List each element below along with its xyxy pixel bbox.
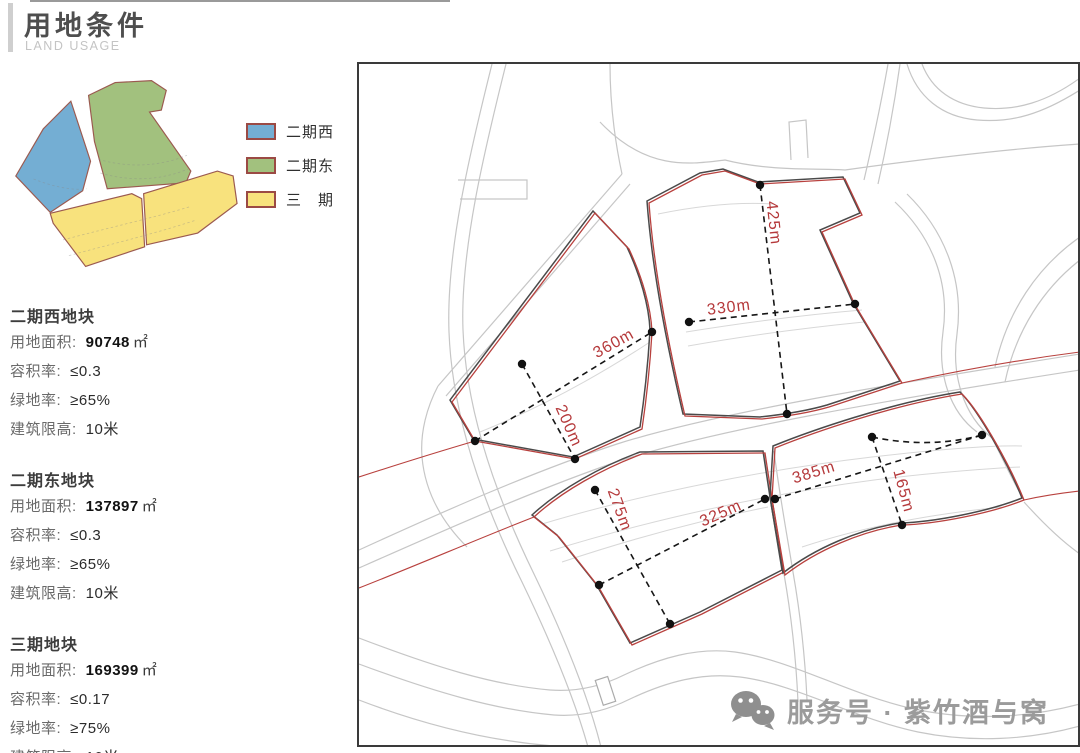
stat-value: ≤0.3	[70, 527, 101, 544]
stat-value: 90748	[86, 334, 130, 351]
stat-row-far: 容积率:≤0.3	[10, 524, 355, 553]
legend-label: 二期东	[286, 155, 334, 176]
stat-row-area: 用地面积:137897㎡	[10, 495, 355, 524]
stat-label: 用地面积:	[10, 498, 77, 515]
stat-row-area: 用地面积:169399㎡	[10, 659, 355, 688]
stat-unit: ㎡	[133, 334, 149, 351]
wechat-icon	[727, 686, 779, 734]
dim-label-165m: 165m	[889, 467, 917, 514]
key-map-thumbnail	[4, 62, 240, 288]
stat-label: 绿地率:	[10, 392, 61, 409]
map-legend: 二期西 二期东 三 期	[246, 121, 334, 223]
page-subtitle: LAND USAGE	[25, 39, 121, 53]
dim-label-325m: 325m	[697, 497, 744, 530]
legend-swatch-phase3	[246, 191, 276, 208]
stat-unit: ㎡	[142, 662, 158, 679]
stat-row-height: 建筑限高:10米	[10, 418, 355, 447]
legend-label: 三 期	[286, 189, 334, 210]
stat-unit: ㎡	[142, 498, 158, 515]
stat-value: ≤0.3	[70, 363, 101, 380]
dim-label-200m: 200m	[552, 402, 585, 449]
page-title: 用地条件	[24, 4, 148, 43]
parcel-phase3-west-boundary	[532, 451, 784, 645]
section-phase2-west: 二期西地块 用地面积:90748㎡ 容积率:≤0.3 绿地率:≥65% 建筑限高…	[10, 303, 355, 447]
legend-swatch-phase2-east	[246, 157, 276, 174]
top-rule	[30, 0, 450, 2]
stat-value: 10米	[86, 421, 119, 438]
stat-label: 用地面积:	[10, 662, 77, 679]
section-phase3: 三期地块 用地面积:169399㎡ 容积率:≤0.17 绿地率:≥75% 建筑限…	[10, 631, 355, 753]
stat-row-height: 建筑限高:10米	[10, 582, 355, 611]
legend-item-phase3: 三 期	[246, 189, 334, 210]
dimension-labels: 425m 330m 360m 200m 275m 325m 385m 165m	[552, 200, 918, 533]
section-title: 二期东地块	[10, 467, 355, 495]
stat-value: ≤0.17	[70, 691, 110, 708]
land-usage-slide: 用地条件 LAND USAGE 二期西 二期东 三 期 二期西地块 用地面积:9	[0, 0, 1080, 753]
stat-label: 建筑限高:	[10, 585, 77, 602]
legend-item-phase2-west: 二期西	[246, 121, 334, 142]
stat-value: 10米	[86, 585, 119, 602]
stat-label: 建筑限高:	[10, 749, 77, 753]
thumb-parcel-phase3-west	[50, 194, 144, 267]
dim-label-385m: 385m	[790, 458, 837, 487]
dim-label-275m: 275m	[604, 486, 635, 533]
stat-row-area: 用地面积:90748㎡	[10, 331, 355, 360]
stat-value: 137897	[86, 498, 139, 515]
dim-label-360m: 360m	[590, 326, 637, 362]
thumb-parcel-phase2-east	[89, 81, 191, 189]
parcel-statistics: 二期西地块 用地面积:90748㎡ 容积率:≤0.3 绿地率:≥65% 建筑限高…	[10, 303, 355, 753]
stat-label: 容积率:	[10, 691, 61, 708]
stat-label: 容积率:	[10, 363, 61, 380]
watermark: 服务号 · 紫竹酒与窝	[727, 686, 1049, 734]
site-plan-map: 425m 330m 360m 200m 275m 325m 385m 165m	[357, 62, 1080, 747]
section-title: 二期西地块	[10, 303, 355, 331]
stat-value: ≥65%	[70, 392, 110, 409]
stat-row-green: 绿地率:≥65%	[10, 389, 355, 418]
legend-swatch-phase2-west	[246, 123, 276, 140]
watermark-text: 服务号 · 紫竹酒与窝	[787, 691, 1049, 730]
stat-row-far: 容积率:≤0.3	[10, 360, 355, 389]
thumb-parcel-phase2-west	[16, 101, 91, 212]
site-plan-svg: 425m 330m 360m 200m 275m 325m 385m 165m	[359, 64, 1078, 745]
stat-value: ≥65%	[70, 556, 110, 573]
stat-label: 建筑限高:	[10, 421, 77, 438]
stat-row-height: 建筑限高:10米	[10, 746, 355, 753]
stat-row-green: 绿地率:≥75%	[10, 717, 355, 746]
stat-value: ≥75%	[70, 720, 110, 737]
stat-value: 10米	[86, 749, 119, 753]
stat-label: 容积率:	[10, 527, 61, 544]
stat-row-green: 绿地率:≥65%	[10, 553, 355, 582]
section-title: 三期地块	[10, 631, 355, 659]
title-accent-bar	[8, 3, 13, 52]
stat-row-far: 容积率:≤0.17	[10, 688, 355, 717]
stat-value: 169399	[86, 662, 139, 679]
stat-label: 用地面积:	[10, 334, 77, 351]
section-phase2-east: 二期东地块 用地面积:137897㎡ 容积率:≤0.3 绿地率:≥65% 建筑限…	[10, 467, 355, 611]
stat-label: 绿地率:	[10, 720, 61, 737]
legend-item-phase2-east: 二期东	[246, 155, 334, 176]
legend-label: 二期西	[286, 121, 334, 142]
stat-label: 绿地率:	[10, 556, 61, 573]
